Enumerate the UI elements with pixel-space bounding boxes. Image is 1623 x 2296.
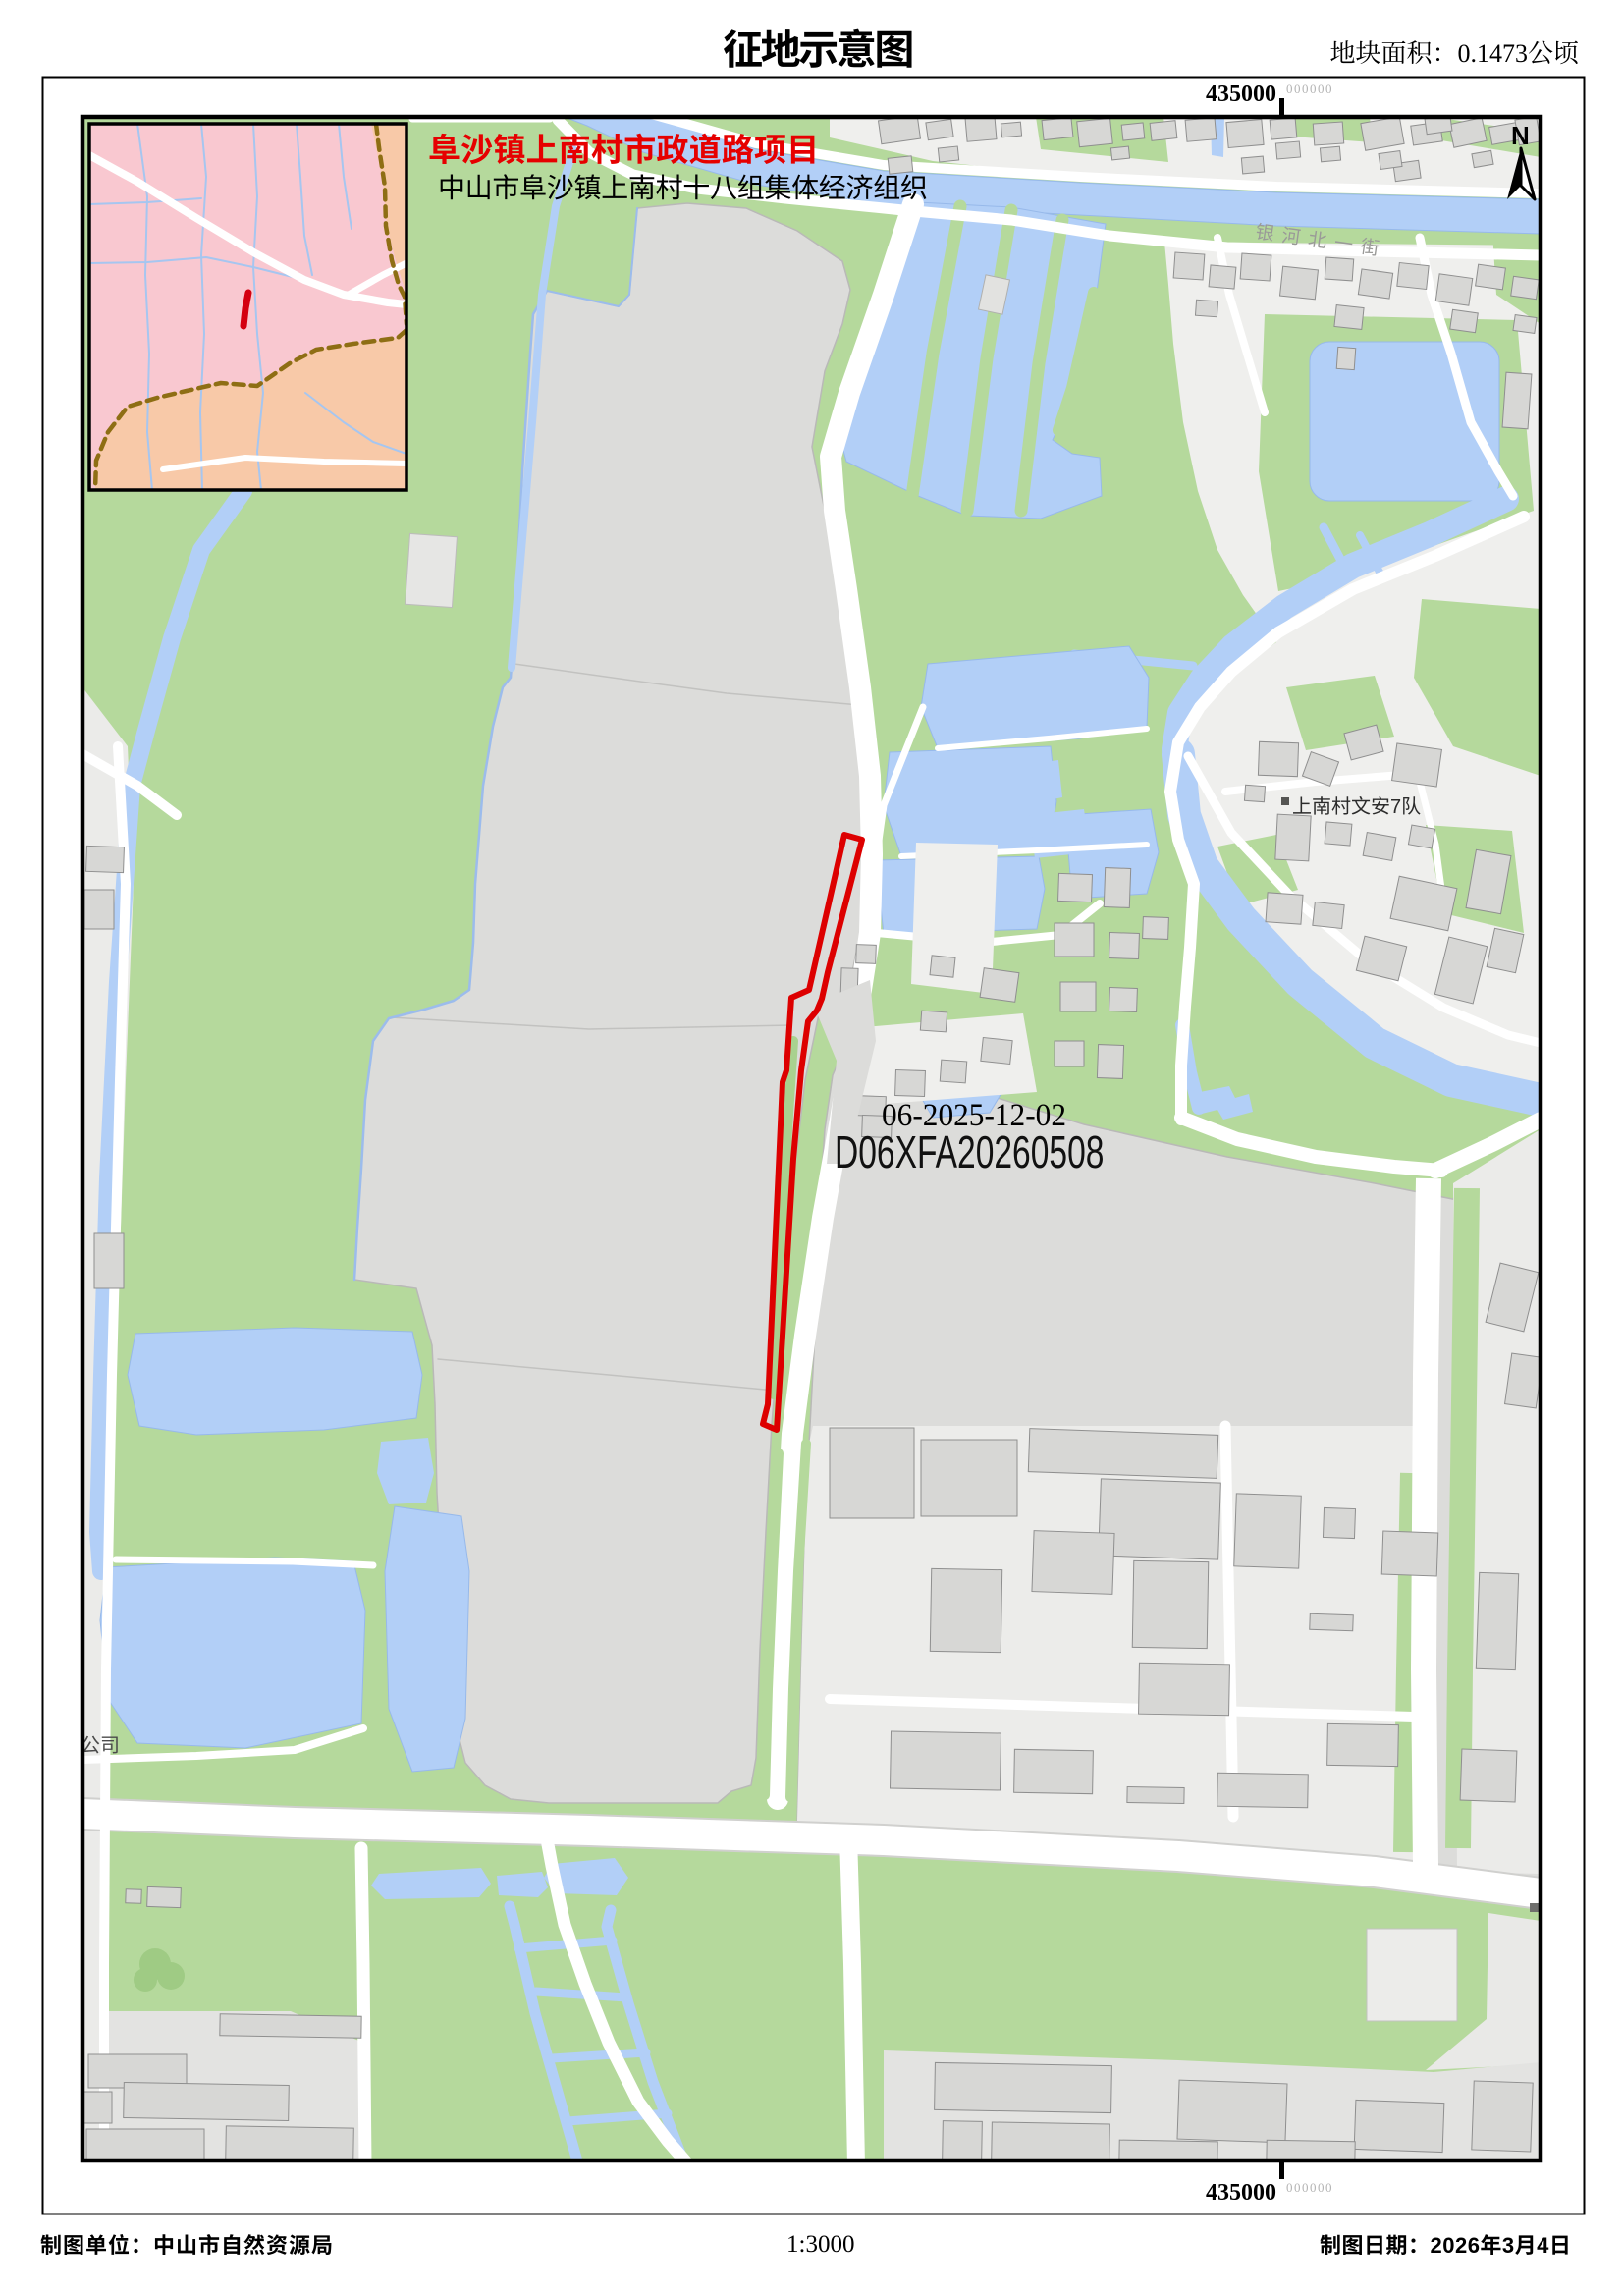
svg-text:1:3000: 1:3000 [786,2231,854,2258]
svg-text:0.1473: 0.1473 [1458,39,1529,68]
svg-text:435000: 435000 [1206,82,1276,107]
svg-text:000000: 000000 [1286,82,1333,96]
svg-text:3: 3 [1502,2233,1515,2258]
svg-text:2026: 2026 [1431,2233,1481,2258]
svg-text:000000: 000000 [1286,2180,1333,2195]
svg-text:N: N [1511,121,1530,150]
svg-text:4: 4 [1537,2233,1549,2258]
svg-text:7: 7 [1390,796,1401,818]
svg-text:D06XFA20260508: D06XFA20260508 [835,1127,1104,1177]
svg-text:435000: 435000 [1206,2180,1276,2206]
